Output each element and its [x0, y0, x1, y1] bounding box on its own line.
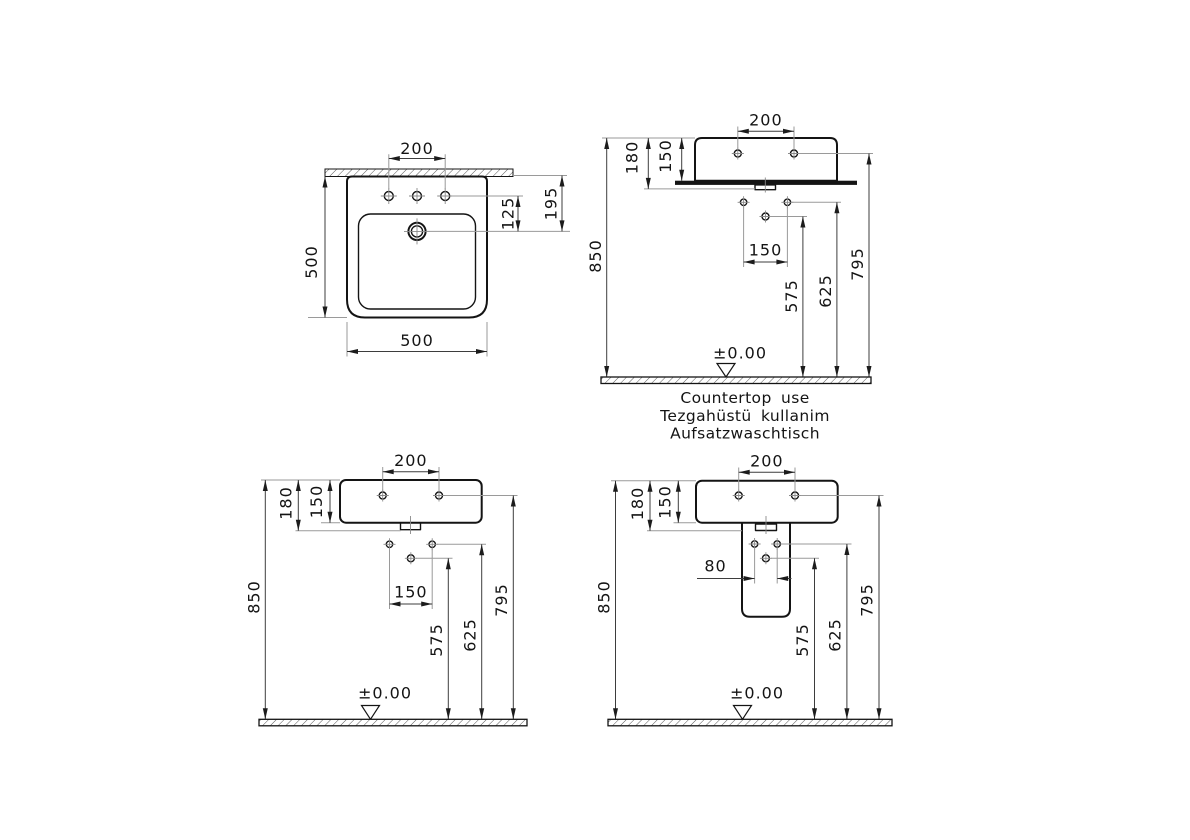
- dim-label-hole-spacing: 80: [704, 557, 726, 576]
- dim-label-850: 850: [595, 580, 614, 614]
- floor-line: [259, 719, 527, 726]
- dim-label-width: 500: [400, 331, 434, 350]
- basin-outline: [695, 138, 837, 181]
- dim-label-150: 150: [656, 485, 675, 519]
- dim-label-tap-spacing: 200: [400, 139, 434, 158]
- pedestal-outline: [742, 523, 790, 617]
- dim-label-180: 180: [628, 487, 647, 521]
- wall-edge-hatch: [325, 169, 513, 177]
- floor-line: [608, 719, 892, 726]
- dim-label-tap-spacing: 200: [750, 452, 784, 471]
- dim-label-180: 180: [277, 486, 296, 520]
- dim-label-850: 850: [245, 580, 264, 614]
- dim-label-150: 150: [307, 485, 326, 519]
- datum-label: ±0.00: [730, 684, 784, 703]
- datum-triangle-icon: [734, 706, 752, 720]
- view-half-pedestal: 200 850 180 150 80 575 625 795 ±0.00: [595, 452, 893, 726]
- dim-label-hole-spacing: 150: [394, 583, 428, 602]
- dim-label-625: 625: [816, 274, 835, 308]
- datum-triangle-icon: [362, 706, 380, 720]
- extension-lines: [611, 468, 884, 584]
- view-countertop: 200 850 180 150 150 575 625 795 ±0.00 Co…: [586, 111, 873, 443]
- caption-de: Aufsatzwaschtisch: [670, 425, 820, 443]
- datum-label: ±0.00: [358, 684, 412, 703]
- caption-en: Countertop use: [680, 389, 809, 407]
- datum-triangle-icon: [717, 364, 735, 378]
- dim-label-625: 625: [826, 618, 845, 652]
- dim-label-180: 180: [623, 141, 642, 175]
- dim-label-575: 575: [793, 623, 812, 657]
- view-wall-hung: 200 850 180 150 150 575 625 795 ±0.00: [245, 451, 528, 726]
- dim-label-575: 575: [782, 279, 801, 313]
- technical-drawing-sheet: 200 500 500 125 195 200 850 180 150 150 …: [0, 0, 1190, 840]
- dim-label-depth: 500: [302, 245, 321, 279]
- dim-label-faucet-from-rear: 195: [542, 187, 561, 221]
- dim-label-850: 850: [586, 239, 605, 273]
- extension-lines: [602, 127, 873, 268]
- dim-label-faucet-offset: 125: [499, 197, 518, 231]
- dim-label-150: 150: [656, 139, 675, 173]
- datum-label: ±0.00: [713, 344, 767, 363]
- dim-label-795: 795: [858, 583, 877, 617]
- extension-lines: [261, 467, 518, 609]
- dim-label-tap-spacing: 200: [394, 451, 428, 470]
- centerline-crosses: [377, 490, 445, 565]
- dim-label-tap-spacing: 200: [749, 111, 783, 130]
- floor-line: [601, 377, 871, 384]
- dim-label-575: 575: [427, 623, 446, 657]
- drawing-canvas: 200 500 500 125 195 200 850 180 150 150 …: [0, 0, 1190, 840]
- dim-label-795: 795: [492, 583, 511, 617]
- dim-label-795: 795: [848, 247, 867, 281]
- dim-label-625: 625: [461, 618, 480, 652]
- view-plan: 200 500 500 125 195: [302, 139, 570, 357]
- caption-tr: Tezgahüstü kullanim: [659, 407, 830, 425]
- basin-outline: [696, 481, 838, 523]
- dim-label-hole-spacing: 150: [749, 241, 783, 260]
